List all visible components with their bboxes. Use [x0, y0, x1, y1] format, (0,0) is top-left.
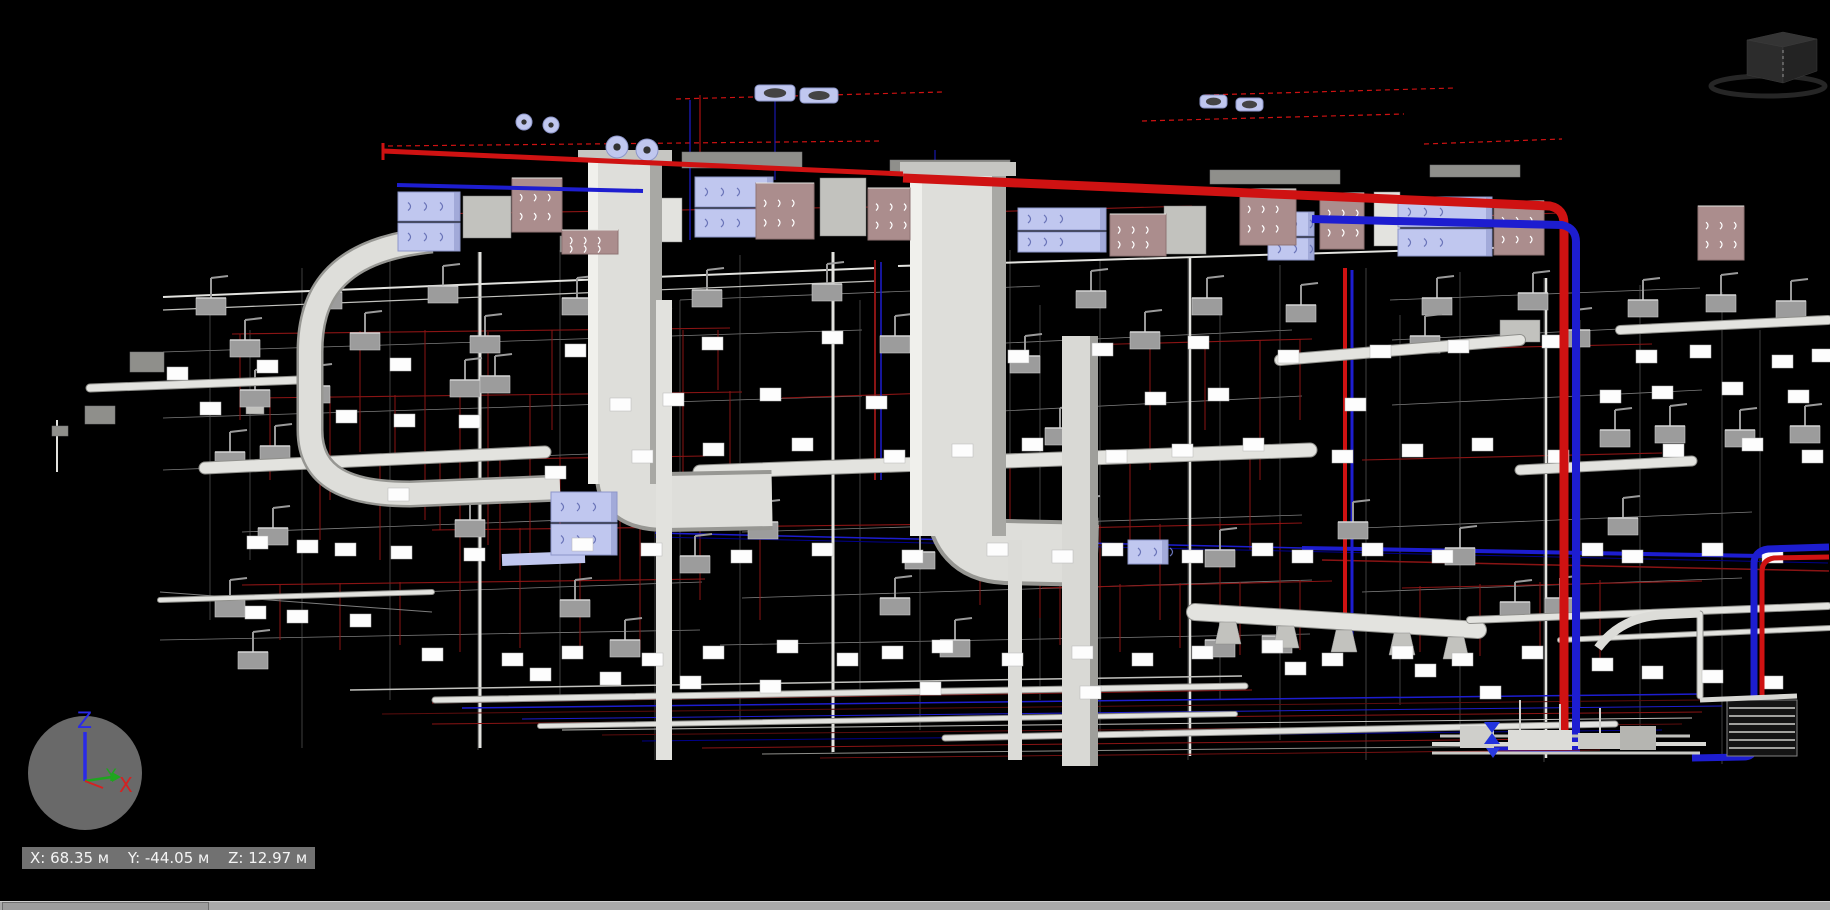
light-fixture [1652, 386, 1673, 399]
riser2-highlight [910, 172, 922, 536]
duct-bellmouth [1215, 622, 1241, 644]
light-fixture [167, 367, 188, 380]
air-diffuser [1706, 295, 1736, 312]
ahu-lavender-box [398, 192, 460, 221]
light-fixture [1008, 350, 1029, 363]
light-fixture [1480, 686, 1501, 699]
pump-body-4 [1460, 726, 1494, 748]
coordinate-readout: X: 68.35 м Y: -44.05 м Z: 12.97 м [22, 847, 315, 869]
light-fixture [287, 610, 308, 623]
air-diffuser [1076, 291, 1106, 308]
light-fixture [247, 536, 268, 549]
light-fixture [792, 438, 813, 451]
air-diffuser [1776, 301, 1806, 318]
light-fixture [1285, 662, 1306, 675]
light-fixture [1812, 349, 1830, 362]
light-fixture [987, 543, 1008, 556]
light-fixture [1448, 340, 1469, 353]
light-fixture [932, 640, 953, 653]
light-fixture [530, 668, 551, 681]
riser1-highlight [588, 158, 598, 484]
light-fixture [336, 410, 357, 423]
light-fixture [902, 550, 923, 563]
air-diffuser [1518, 293, 1548, 310]
light-fixture [760, 388, 781, 401]
light-fixture [632, 450, 653, 463]
light-fixture [1192, 646, 1213, 659]
ahu-mauve-panel [1110, 214, 1166, 256]
light-fixture [1106, 450, 1127, 463]
air-diffuser [680, 556, 710, 573]
light-fixture [884, 450, 905, 463]
light-fixture [837, 653, 858, 666]
air-diffuser [812, 284, 842, 301]
air-diffuser [470, 336, 500, 353]
light-fixture [388, 488, 409, 501]
light-fixture [1452, 653, 1473, 666]
light-fixture [1370, 345, 1391, 358]
air-diffuser [230, 340, 260, 357]
ahu-mauve-panel [1698, 206, 1744, 260]
light-fixture [1802, 450, 1823, 463]
light-fixture [1182, 550, 1203, 563]
light-fixture [1415, 664, 1436, 677]
light-fixture [1702, 543, 1723, 556]
z-axis-label: Z [77, 709, 92, 734]
air-diffuser [240, 390, 270, 407]
light-fixture [812, 543, 833, 556]
equipment-box [820, 178, 866, 236]
light-fixture [1208, 388, 1229, 401]
light-fixture [1332, 450, 1353, 463]
ahu-mauve-panel [868, 188, 910, 240]
light-fixture [642, 653, 663, 666]
air-diffuser [692, 290, 722, 307]
coordinate-y: Y: -44.05 м [128, 849, 209, 867]
light-fixture [1322, 653, 1343, 666]
air-diffuser [1608, 518, 1638, 535]
light-fixture [297, 540, 318, 553]
light-fixture [1636, 350, 1657, 363]
ahu-lavender-box [551, 492, 617, 522]
air-diffuser [450, 380, 480, 397]
view-cube[interactable] [1711, 32, 1825, 96]
light-fixture [1278, 350, 1299, 363]
light-fixture [391, 546, 412, 559]
pump-body-1 [1508, 730, 1572, 750]
air-diffuser [238, 652, 268, 669]
air-diffuser [215, 600, 245, 617]
axis-triad: Z Y X [28, 709, 142, 830]
light-fixture [1292, 550, 1313, 563]
light-fixture [1702, 670, 1723, 683]
air-diffuser [1655, 426, 1685, 443]
air-diffuser [880, 598, 910, 615]
view-cube-right-face[interactable] [1783, 39, 1817, 83]
air-diffuser [350, 333, 380, 350]
coordinate-z: Z: 12.97 м [228, 849, 307, 867]
equipment-box [1210, 170, 1340, 184]
light-fixture [882, 646, 903, 659]
equipment-box [1164, 206, 1206, 254]
light-fixture [1052, 550, 1073, 563]
ahu-lavender-box [398, 223, 460, 251]
light-fixture [760, 680, 781, 693]
light-fixture [1600, 390, 1621, 403]
light-fixture [1022, 438, 1043, 451]
light-fixture [1002, 653, 1023, 666]
light-fixture [777, 640, 798, 653]
light-fixture [1762, 676, 1783, 689]
light-fixture [565, 344, 586, 357]
light-fixture [1402, 444, 1423, 457]
light-fixture [1788, 390, 1809, 403]
light-fixture [335, 543, 356, 556]
light-fixture [1742, 438, 1763, 451]
light-fixture [257, 360, 278, 373]
light-fixture [1145, 392, 1166, 405]
light-fixture [1772, 355, 1793, 368]
air-diffuser [880, 336, 910, 353]
light-fixture [703, 443, 724, 456]
equipment-box [52, 426, 68, 436]
light-fixture [1172, 444, 1193, 457]
air-diffuser [1130, 332, 1160, 349]
light-fixture [1722, 382, 1743, 395]
duct-column-2 [1008, 540, 1022, 760]
light-fixture [1392, 646, 1413, 659]
equipment-box [130, 352, 164, 372]
air-diffuser [1628, 300, 1658, 317]
light-fixture [600, 672, 621, 685]
ahu-lavender-box [1398, 229, 1492, 256]
light-fixture [703, 646, 724, 659]
air-diffuser [562, 298, 592, 315]
3d-viewport[interactable]: Z Y X [0, 0, 1830, 910]
light-fixture [1522, 646, 1543, 659]
y-axis-label: Y [105, 766, 117, 786]
light-fixture [464, 548, 485, 561]
light-fixture [502, 653, 523, 666]
ahu-mauve-panel [562, 230, 618, 254]
air-diffuser [1600, 430, 1630, 447]
light-fixture [350, 614, 371, 627]
equipment-box [85, 406, 115, 424]
light-fixture [572, 538, 593, 551]
light-fixture [1188, 336, 1209, 349]
light-fixture [1690, 345, 1711, 358]
light-fixture [680, 676, 701, 689]
light-fixture [1132, 653, 1153, 666]
light-fixture [610, 398, 631, 411]
viewer-window: Z Y X X: 68.35 м Y: -44.05 м Z: 12.97 м [0, 0, 1830, 910]
light-fixture [422, 648, 443, 661]
duct-riser-2 [910, 172, 1006, 536]
air-diffuser [1192, 298, 1222, 315]
light-fixture [1642, 666, 1663, 679]
light-fixture [663, 393, 684, 406]
light-fixture [1345, 398, 1366, 411]
air-diffuser [610, 640, 640, 657]
light-fixture [1102, 543, 1123, 556]
light-fixture [920, 682, 941, 695]
equipment-box [1430, 165, 1520, 177]
light-fixture [200, 402, 221, 415]
equipment-box [463, 196, 511, 238]
light-fixture [702, 337, 723, 350]
light-fixture [562, 646, 583, 659]
taskbar[interactable] [0, 901, 1830, 910]
riser2-shade [992, 172, 1006, 536]
light-fixture [1362, 543, 1383, 556]
light-fixture [822, 331, 843, 344]
light-fixture [1592, 658, 1613, 671]
light-fixture [1252, 543, 1273, 556]
air-diffuser [560, 600, 590, 617]
air-diffuser [1205, 550, 1235, 567]
air-diffuser [428, 286, 458, 303]
pump-body-3 [1620, 726, 1656, 750]
air-diffuser [1790, 426, 1820, 443]
light-fixture [952, 444, 973, 457]
light-fixture [1582, 543, 1603, 556]
light-fixture [459, 415, 480, 428]
duct-column-1 [656, 300, 672, 760]
light-fixture [1072, 646, 1093, 659]
coordinate-x: X: 68.35 м [30, 849, 109, 867]
air-diffuser [480, 376, 510, 393]
x-axis-label: X [119, 773, 133, 797]
light-fixture [1080, 686, 1101, 699]
riser3-shade [1090, 336, 1098, 766]
light-fixture [1472, 438, 1493, 451]
light-fixture [1622, 550, 1643, 563]
light-fixture [1663, 444, 1684, 457]
light-fixture [245, 606, 266, 619]
riser2-flare [900, 162, 1016, 176]
taskbar-status-cell [2, 902, 209, 910]
air-diffuser [455, 520, 485, 537]
air-diffuser [1338, 522, 1368, 539]
light-fixture [545, 466, 566, 479]
light-fixture [1262, 640, 1283, 653]
air-diffuser [1286, 305, 1316, 322]
light-fixture [390, 358, 411, 371]
light-fixture [1092, 343, 1113, 356]
light-fixture [866, 396, 887, 409]
light-fixture [641, 543, 662, 556]
light-fixture [394, 414, 415, 427]
light-fixture [1243, 438, 1264, 451]
light-fixture [1432, 550, 1453, 563]
air-diffuser [196, 298, 226, 315]
ahu-mauve-panel [756, 183, 814, 239]
air-diffuser [1422, 298, 1452, 315]
light-fixture [731, 550, 752, 563]
